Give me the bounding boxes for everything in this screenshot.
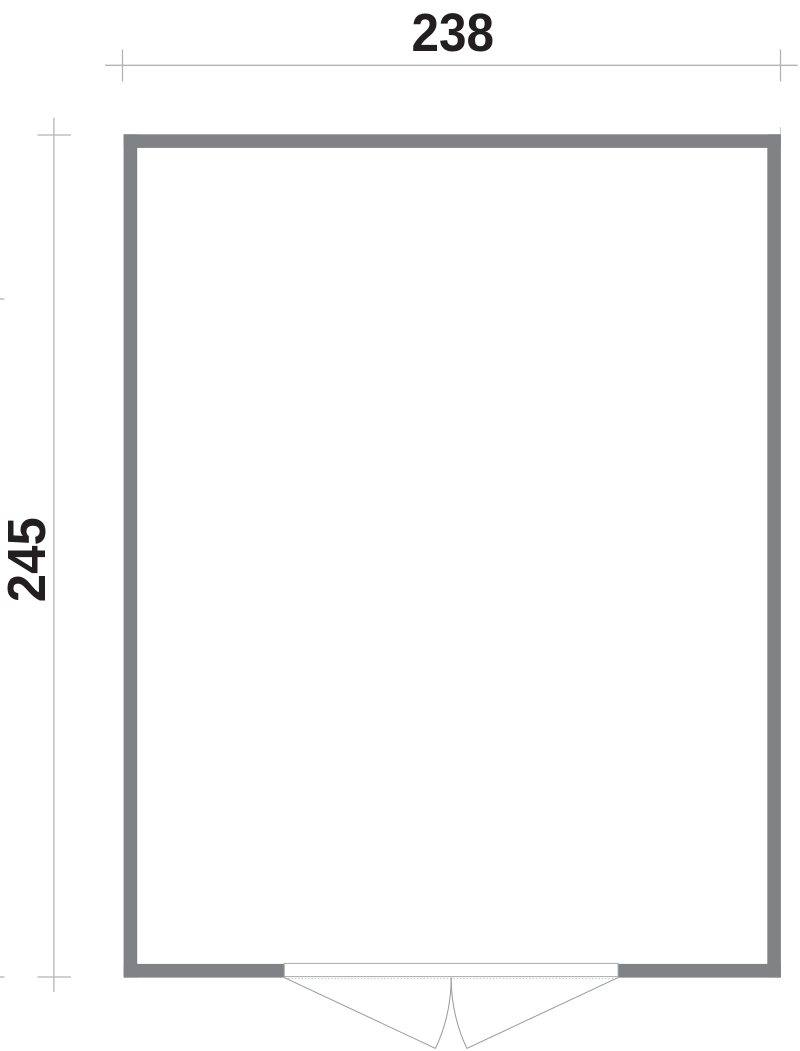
- svg-text:238: 238: [412, 4, 495, 63]
- svg-text:245: 245: [0, 517, 57, 602]
